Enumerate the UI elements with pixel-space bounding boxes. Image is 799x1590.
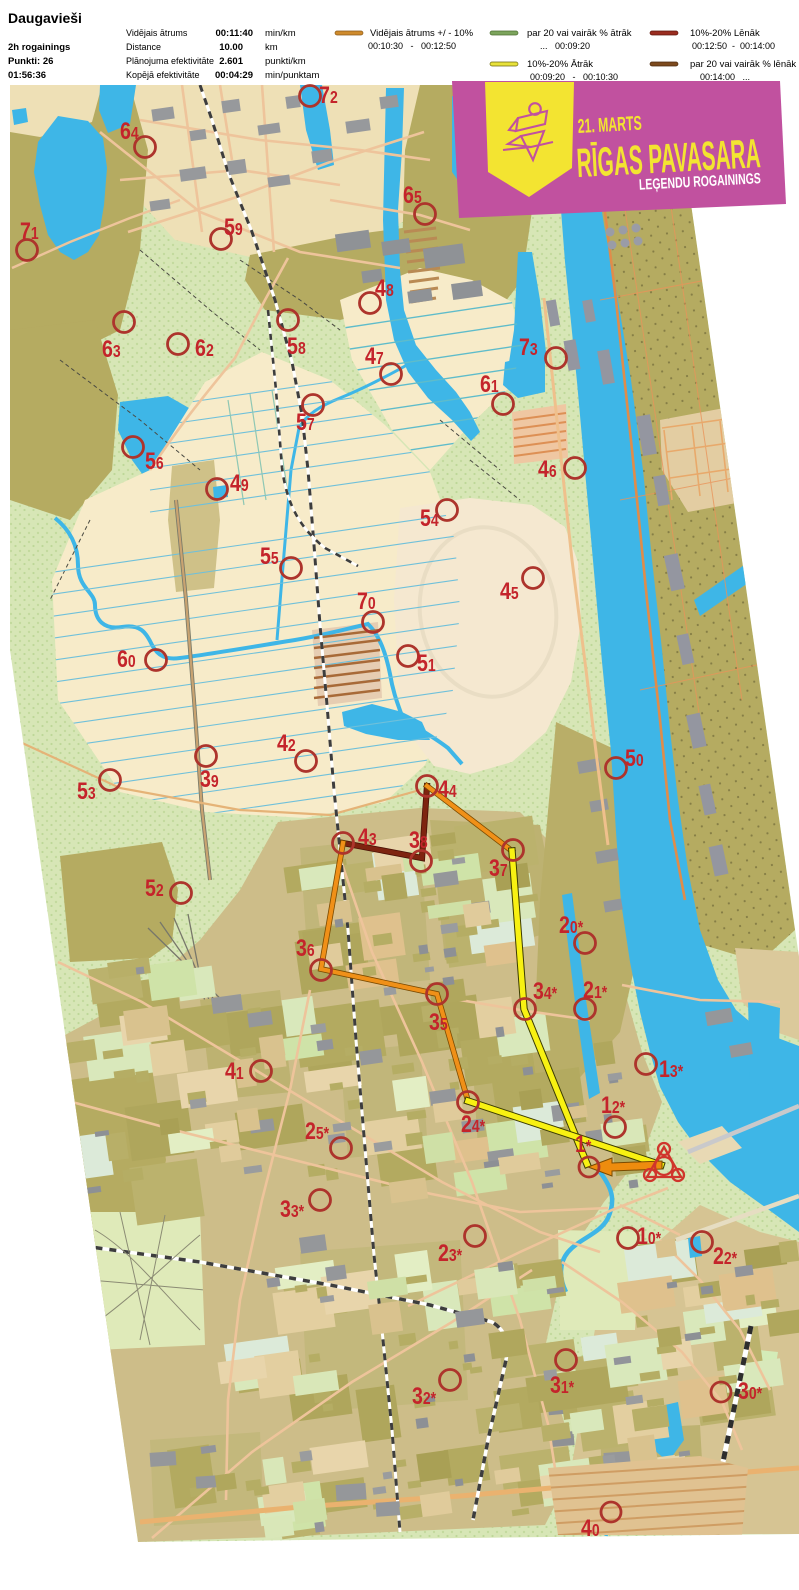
svg-text:Vidējais ātrums +/ - 10%: Vidējais ātrums +/ - 10% — [370, 28, 474, 39]
svg-text:00:11:40: 00:11:40 — [215, 28, 253, 39]
svg-text:00:04:29: 00:04:29 — [215, 70, 253, 81]
svg-text:Daugavieši: Daugavieši — [8, 10, 82, 26]
svg-text:2h rogainings: 2h rogainings — [8, 42, 70, 53]
svg-text:punkti/km: punkti/km — [265, 56, 306, 67]
svg-text:00:14:00 ...: 00:14:00 ... — [700, 72, 750, 82]
svg-text:10.00: 10.00 — [219, 42, 243, 53]
svg-text:10%-20% Lēnāk: 10%-20% Lēnāk — [690, 28, 760, 39]
svg-text:Distance: Distance — [126, 42, 161, 52]
svg-text:21. MARTS: 21. MARTS — [577, 113, 642, 138]
svg-text:Kopējā efektivitāte: Kopējā efektivitāte — [126, 70, 200, 80]
svg-text:Punkti: 26: Punkti: 26 — [8, 56, 53, 67]
svg-text:00:10:30 - 00:12:50: 00:10:30 - 00:12:50 — [368, 41, 456, 51]
svg-text:01:56:36: 01:56:36 — [8, 70, 46, 81]
svg-text:00:09:20 - 00:10:30: 00:09:20 - 00:10:30 — [530, 72, 618, 82]
svg-text:2.601: 2.601 — [219, 56, 243, 67]
svg-text:00:12:50 - 00:14:00: 00:12:50 - 00:14:00 — [692, 41, 775, 51]
svg-text:... 00:09:20: ... 00:09:20 — [540, 41, 590, 51]
svg-text:km: km — [265, 42, 278, 53]
svg-text:10%-20% Ātrāk: 10%-20% Ātrāk — [527, 59, 593, 70]
svg-text:Vidējais ātrums: Vidējais ātrums — [126, 28, 188, 38]
svg-text:min/km: min/km — [265, 28, 296, 39]
svg-text:Plānojuma efektivitāte: Plānojuma efektivitāte — [126, 56, 214, 66]
svg-text:par 20 vai vairāk % lēnāk: par 20 vai vairāk % lēnāk — [690, 59, 796, 70]
svg-text:min/punktam: min/punktam — [265, 70, 319, 81]
svg-text:par 20 vai vairāk % ātrāk: par 20 vai vairāk % ātrāk — [527, 28, 632, 39]
